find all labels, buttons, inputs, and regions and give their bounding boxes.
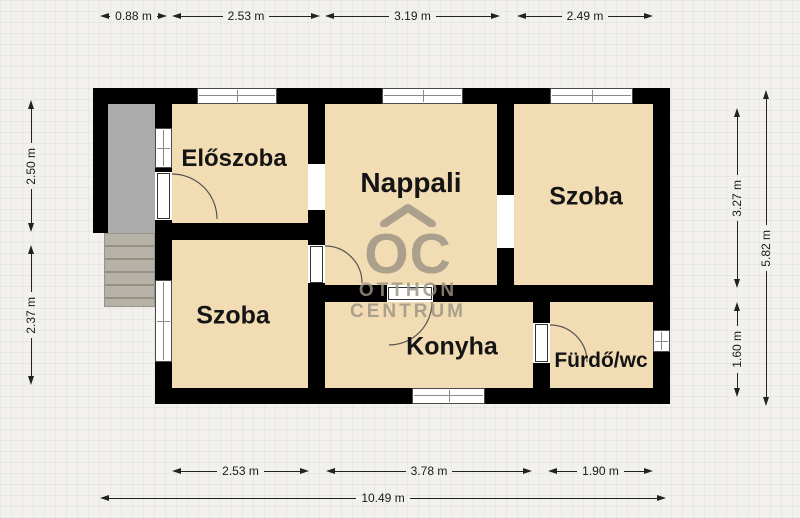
- dimension-top-szoba: 2.49 m: [517, 10, 653, 22]
- window-szoba-left: [155, 280, 172, 362]
- label-szoba-left: Szoba: [196, 302, 270, 331]
- dimension-top-eloszoba: 2.53 m: [172, 10, 320, 22]
- window-konyha-bottom: [412, 388, 485, 404]
- stairs: [104, 233, 155, 307]
- label-szoba-right: Szoba: [549, 183, 623, 212]
- floor-plan: Előszoba Nappali Szoba Szoba Konyha Fürd…: [0, 0, 800, 518]
- room-furdo: [550, 302, 653, 388]
- opening-eloszoba-nappali: [308, 162, 325, 212]
- dimension-left-lower: 2.37 m: [24, 245, 38, 385]
- label-nappali: Nappali: [360, 167, 461, 199]
- window-szoba-top: [550, 88, 633, 104]
- dimension-right-furdo: 1.60 m: [730, 302, 744, 397]
- dimension-left-upper: 2.50 m: [24, 100, 38, 232]
- door-szoba-nappali-leaf: [310, 246, 323, 283]
- window-nappali-top: [382, 88, 463, 104]
- label-eloszoba: Előszoba: [181, 145, 286, 173]
- window-eloszoba-top: [197, 88, 277, 104]
- dimension-bottom-szoba: 2.53 m: [172, 465, 309, 477]
- door-konyha-furdo-leaf: [535, 324, 548, 362]
- label-furdo: Fürdő/wc: [554, 349, 647, 373]
- dimension-top-nappali: 3.19 m: [325, 10, 500, 22]
- dimension-top-porch: 0.88 m: [100, 10, 167, 22]
- opening-nappali-szoba: [497, 193, 514, 250]
- door-nappali-konyha-leaf: [388, 287, 432, 300]
- label-konyha: Konyha: [406, 333, 498, 362]
- window-furdo-right: [653, 330, 670, 352]
- window-eloszoba-left: [155, 128, 172, 168]
- door-entry-leaf: [157, 173, 170, 219]
- dimension-right-total: 5.82 m: [759, 90, 773, 406]
- dimension-bottom-total: 10.49 m: [100, 492, 666, 504]
- dimension-bottom-konyha: 3.78 m: [326, 465, 532, 477]
- porch: [108, 104, 155, 233]
- dimension-right-szoba: 3.27 m: [730, 108, 744, 288]
- wall-porch-left: [93, 88, 108, 233]
- dimension-bottom-furdo: 1.90 m: [548, 465, 653, 477]
